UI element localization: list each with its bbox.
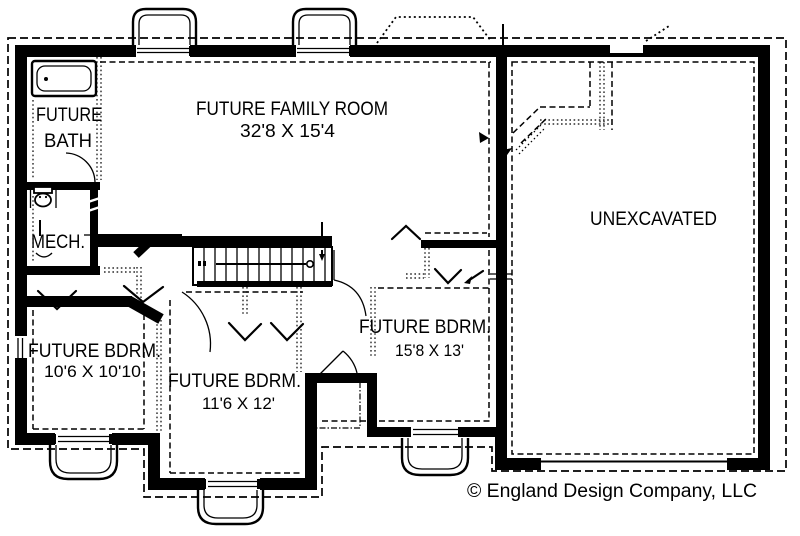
copyright-text: © England Design Company, LLC — [467, 481, 757, 502]
dims-bdrm-right: 15'8 X 13' — [395, 341, 464, 360]
label-bath-line1: FUTURE — [36, 105, 102, 126]
room-labels: FUTURE BATH MECH. FUTURE FAMILY ROOM 32'… — [28, 99, 717, 413]
label-bdrm-right: FUTURE BDRM. — [359, 317, 491, 338]
dims-bdrm-left: 10'6 X 10'10 — [44, 362, 141, 381]
bathtub — [32, 61, 96, 96]
toilet — [31, 187, 57, 208]
label-unexcavated: UNEXCAVATED — [590, 209, 717, 230]
label-mech: MECH. — [31, 232, 85, 253]
dims-family-room: 32'8 X 15'4 — [240, 121, 335, 141]
walls — [15, 45, 770, 490]
basement-floor-plan: FUTURE BATH MECH. FUTURE FAMILY ROOM 32'… — [0, 0, 800, 536]
floor-plan-drawing: FUTURE BATH MECH. FUTURE FAMILY ROOM 32'… — [0, 0, 800, 536]
label-family-room: FUTURE FAMILY ROOM — [196, 99, 388, 120]
stair-direction-marker — [307, 261, 313, 267]
staircase — [193, 247, 332, 287]
label-bdrm-left: FUTURE BDRM. — [28, 341, 161, 362]
label-bath-line2: BATH — [44, 131, 92, 152]
dims-bdrm-center: 11'6 X 12' — [202, 394, 275, 413]
porch-dotted-outline — [377, 17, 669, 43]
label-bdrm-center: FUTURE BDRM. — [168, 371, 301, 392]
